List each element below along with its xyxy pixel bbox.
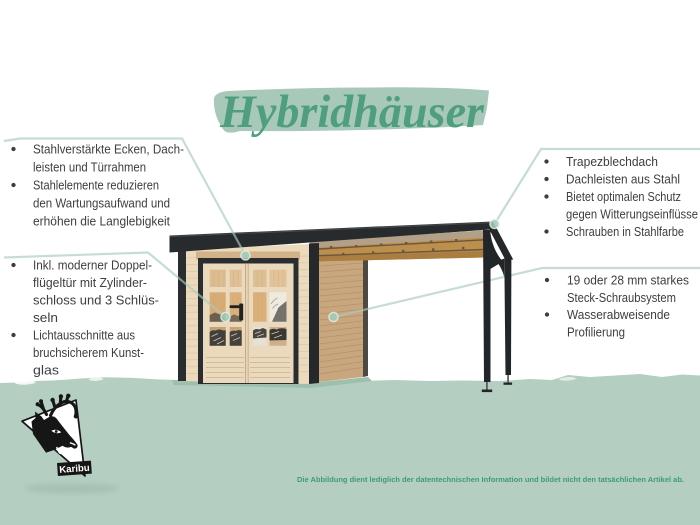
svg-text:Die Abbildung dient lediglich: Die Abbildung dient lediglich der datent… xyxy=(297,475,684,484)
svg-text:Dachleisten aus Stahl: Dachleisten aus Stahl xyxy=(566,172,680,187)
svg-text:Hybridhäuser: Hybridhäuser xyxy=(219,86,485,138)
svg-text:Trapezblechdach: Trapezblechdach xyxy=(566,154,658,169)
svg-text:glas: glas xyxy=(33,363,59,378)
svg-text:leisten und Türrahmen: leisten und Türrahmen xyxy=(33,160,146,175)
svg-text:Bietet optimalen Schutz: Bietet optimalen Schutz xyxy=(566,189,681,204)
svg-text:Steck-Schraubsystem: Steck-Schraubsystem xyxy=(567,290,676,305)
svg-text:Lichtausschnitte aus: Lichtausschnitte aus xyxy=(33,328,135,343)
svg-text:Stahlverstärkte Ecken, Dach-: Stahlverstärkte Ecken, Dach- xyxy=(33,142,184,157)
svg-text:Schrauben in Stahlfarbe: Schrauben in Stahlfarbe xyxy=(566,224,684,239)
svg-text:Stahlelemente reduzieren: Stahlelemente reduzieren xyxy=(33,178,159,193)
svg-text:erhöhen die Langlebigkeit: erhöhen die Langlebigkeit xyxy=(33,214,170,229)
svg-text:den Wartungsaufwand und: den Wartungsaufwand und xyxy=(33,196,170,211)
svg-text:19 oder 28 mm starkes: 19 oder 28 mm starkes xyxy=(567,273,689,288)
svg-text:bruchsicherem Kunst-: bruchsicherem Kunst- xyxy=(33,345,144,360)
svg-text:flügeltür mit Zylinder-: flügeltür mit Zylinder- xyxy=(33,275,147,290)
svg-text:Wasserabweisende: Wasserabweisende xyxy=(567,307,670,322)
svg-text:gegen Witterungseinflüsse: gegen Witterungseinflüsse xyxy=(566,207,698,222)
svg-text:Inkl. moderner Doppel-: Inkl. moderner Doppel- xyxy=(33,258,152,273)
svg-text:Karibu: Karibu xyxy=(59,463,90,476)
svg-text:Profilierung: Profilierung xyxy=(567,325,625,340)
svg-text:schloss und 3 Schlüs-: schloss und 3 Schlüs- xyxy=(33,293,159,308)
svg-text:seln: seln xyxy=(33,310,58,325)
